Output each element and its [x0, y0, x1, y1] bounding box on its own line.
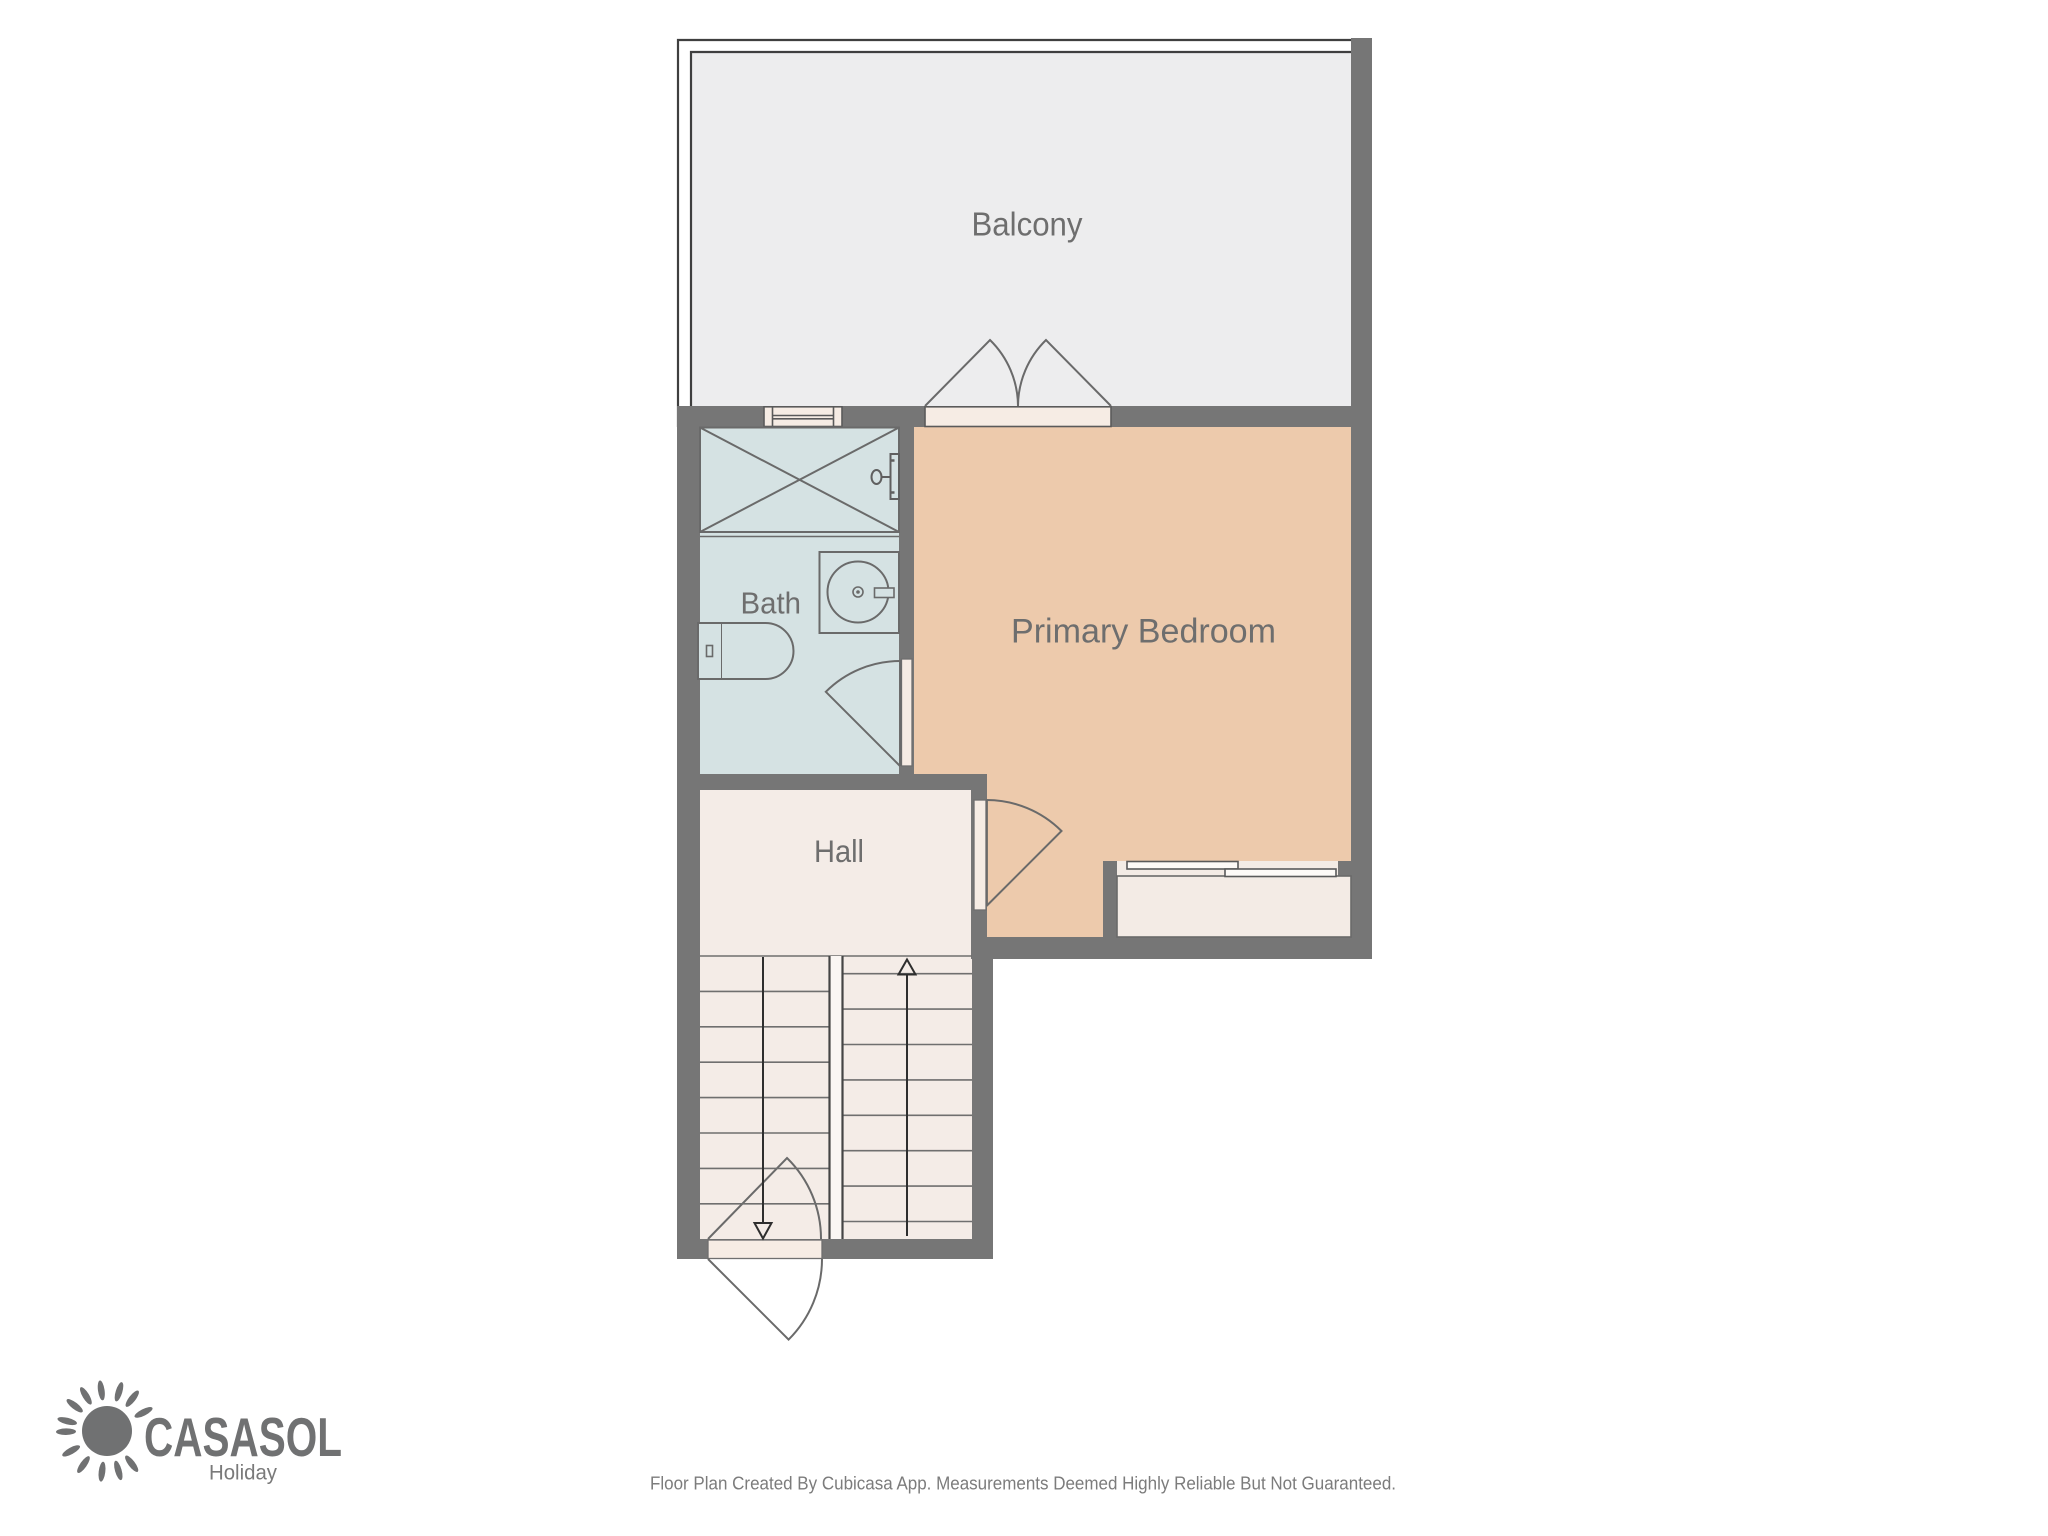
svg-text:Floor Plan Created By Cubicasa: Floor Plan Created By Cubicasa App. Meas… [650, 1473, 1396, 1494]
svg-text:CASASOL: CASASOL [144, 1406, 342, 1468]
svg-text:Hall: Hall [814, 833, 864, 869]
svg-text:Bath: Bath [741, 586, 802, 621]
svg-text:Primary Bedroom: Primary Bedroom [1011, 613, 1276, 651]
svg-text:Holiday: Holiday [209, 1462, 277, 1485]
svg-text:Balcony: Balcony [972, 206, 1083, 243]
